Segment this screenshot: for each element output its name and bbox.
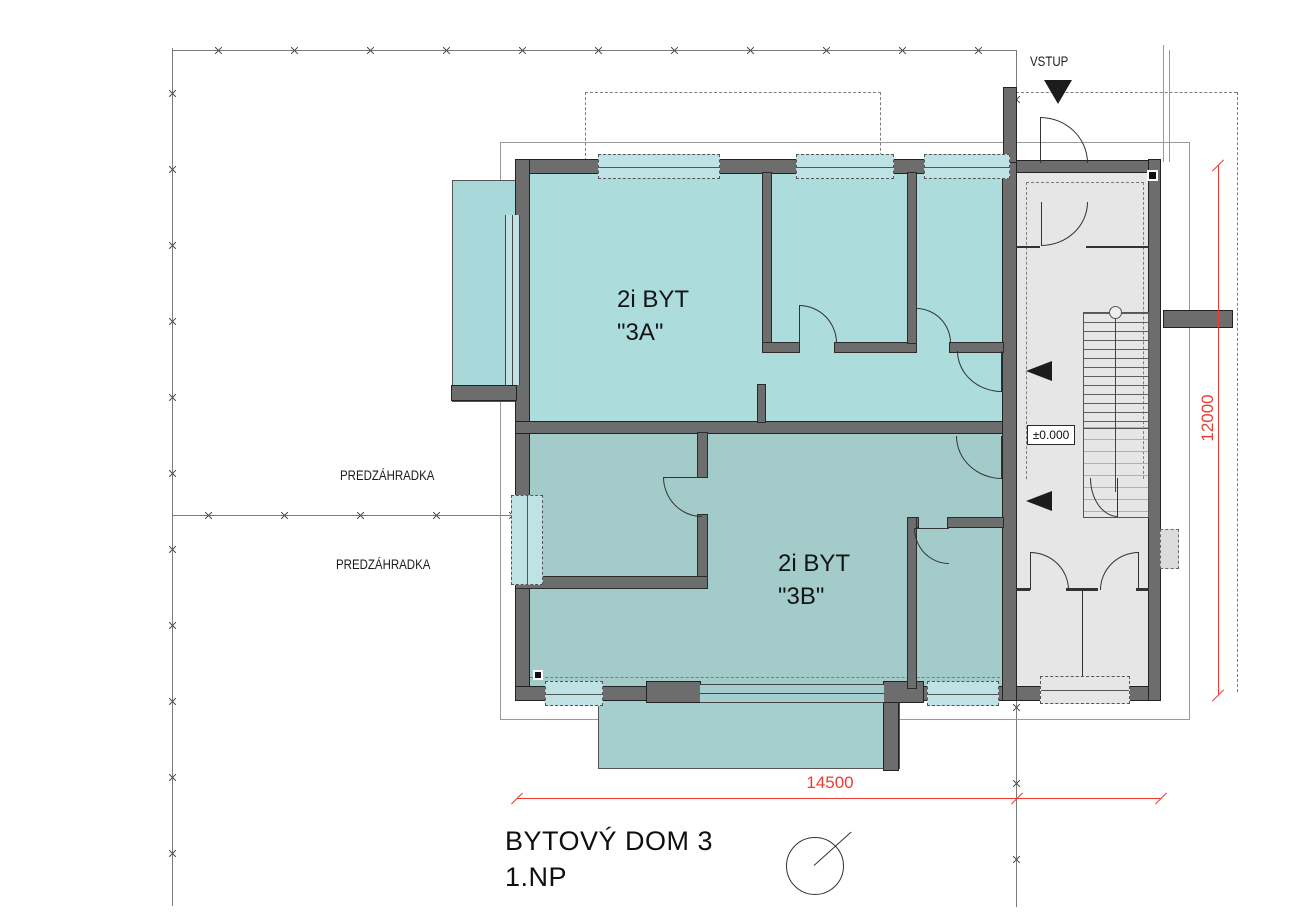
floor-plan-sheet: ±0.000 VSTUP PREDZÁHRADKA PREDZÁHRADKA 2… — [0, 0, 1300, 919]
staircase-center-rail — [1115, 312, 1116, 492]
fence-tick-mark — [205, 512, 212, 519]
staircase-upper-flight — [1083, 312, 1149, 429]
roof-overhang-outline — [585, 92, 881, 161]
window-pane — [546, 694, 602, 695]
fence-tick-mark — [1013, 780, 1020, 787]
fence-tick-mark — [169, 90, 176, 97]
fence-tick-mark — [357, 512, 364, 519]
door-arc-main-entrance — [1040, 117, 1088, 163]
site-boundary-top — [173, 50, 1016, 51]
fence-tick-mark — [169, 774, 176, 781]
apartment-b-entry-arrow-icon — [1026, 491, 1052, 511]
dimension-width-label: 14500 — [790, 773, 870, 793]
fence-tick-mark — [215, 47, 222, 54]
fence-tick-mark — [823, 47, 830, 54]
wall-apartments-common — [1003, 160, 1016, 700]
terrace-b-sliding-door — [700, 684, 884, 703]
fence-tick-mark — [433, 512, 440, 519]
wall-stub-right — [1164, 311, 1232, 327]
window-top-3 — [924, 154, 1010, 179]
wall-3b-bath-seg2 — [948, 518, 1003, 527]
window-top-2 — [796, 154, 894, 179]
terrace-a-wall-stub — [452, 386, 516, 400]
fence-tick-mark — [169, 318, 176, 325]
terrace-a-sliding-door — [505, 215, 520, 385]
vestibule-partition-seg1 — [1016, 246, 1040, 248]
wall-3a-vertical-1 — [763, 173, 771, 343]
drawing-title: BYTOVÝ DOM 3 — [505, 826, 713, 857]
window-pane — [527, 496, 528, 584]
sliding-door-rail — [512, 215, 513, 385]
fence-tick-mark — [443, 47, 450, 54]
site-dashdot-right — [1237, 92, 1238, 692]
dimension-line-vertical — [1218, 165, 1219, 695]
apartment-a-label-line2: "3A" — [617, 316, 689, 349]
fence-tick-mark — [519, 47, 526, 54]
fence-tick-mark — [169, 622, 176, 629]
fence-tick-mark — [671, 47, 678, 54]
front-garden-label-upper: PREDZÁHRADKA — [340, 467, 434, 483]
apartment-b-label-line2: "3B" — [778, 580, 850, 613]
apartment-b-label: 2i BYT "3B" — [778, 547, 850, 613]
terrace-b-wall-stub — [884, 700, 898, 770]
wall-3a-horizontal-seg1 — [763, 343, 799, 352]
apartment-a-entry-arrow-icon — [1026, 361, 1052, 381]
level-marker-text: ±0.000 — [1033, 428, 1070, 442]
window-storage — [1040, 676, 1130, 704]
fence-tick-mark — [899, 47, 906, 54]
vestibule-partition-seg2 — [1086, 246, 1149, 248]
front-garden-label-lower: PREDZÁHRADKA — [336, 556, 430, 572]
wall-3b-vertical-seg1 — [698, 433, 707, 477]
wall-3b-vertical-seg2 — [698, 515, 707, 577]
bottom-wall-pier-2 — [884, 682, 923, 702]
fence-tick-mark — [595, 47, 602, 54]
wall-3a-stub — [758, 385, 765, 422]
fence-tick-mark — [169, 166, 176, 173]
apartment-b-floor — [516, 431, 1016, 700]
wall-niche-right — [1160, 529, 1179, 569]
sliding-door-rail — [700, 693, 884, 694]
fence-tick-mark — [169, 850, 176, 857]
storage-wall-seg2 — [1066, 588, 1098, 591]
wall-3b-bath-vertical — [908, 518, 916, 688]
wall-3a-vertical-2 — [908, 173, 916, 343]
fence-tick-mark — [169, 394, 176, 401]
storage-wall-seg1 — [1016, 588, 1030, 591]
window-bottom-2 — [927, 681, 999, 706]
dimension-line-horizontal — [517, 798, 1161, 799]
wall-exterior-top-common — [1016, 161, 1160, 172]
fence-tick-mark — [975, 47, 982, 54]
apartment-b-dashdot — [530, 677, 1000, 678]
window-3b-left — [511, 495, 543, 585]
storage-divider — [1082, 590, 1083, 684]
fence-tick-mark — [169, 698, 176, 705]
wall-3a-horizontal-seg2 — [835, 343, 916, 352]
fence-tick-mark — [169, 546, 176, 553]
level-marker: ±0.000 — [1027, 425, 1075, 445]
apartment-b-label-line1: 2i BYT — [778, 547, 850, 580]
column-marker-ne — [1147, 170, 1158, 181]
terrace-apartment-b — [598, 700, 900, 769]
fence-tick-mark — [747, 47, 754, 54]
fence-tick-mark — [291, 47, 298, 54]
fence-tick-mark — [169, 470, 176, 477]
staircase-start-marker — [1109, 306, 1122, 319]
window-bottom-1 — [545, 681, 603, 706]
window-pane — [1041, 690, 1129, 691]
fence-tick-mark — [367, 47, 374, 54]
wall-apartment-divider — [516, 422, 1016, 433]
column-marker-sw — [533, 670, 543, 680]
entrance-label: VSTUP — [1030, 53, 1068, 69]
entrance-wall-stub — [1004, 88, 1016, 162]
entrance-arrow-icon — [1044, 80, 1072, 104]
fence-tick-mark — [169, 242, 176, 249]
window-pane — [928, 694, 998, 695]
apartment-a-label: 2i BYT "3A" — [617, 283, 689, 349]
dimension-height-label: 12000 — [1198, 388, 1218, 448]
window-pane — [925, 167, 1009, 168]
fence-tick-mark — [281, 512, 288, 519]
window-pane — [599, 167, 719, 168]
site-boundary-left — [172, 48, 173, 906]
apartment-a-label-line1: 2i BYT — [617, 283, 689, 316]
wall-exterior-right — [1149, 160, 1160, 700]
bottom-wall-pier-1 — [647, 682, 700, 702]
window-pane — [797, 167, 893, 168]
drawing-subtitle: 1.NP — [505, 862, 567, 893]
window-top-1 — [598, 154, 720, 179]
fence-tick-mark — [1013, 856, 1020, 863]
wall-3b-horizontal — [516, 577, 707, 588]
